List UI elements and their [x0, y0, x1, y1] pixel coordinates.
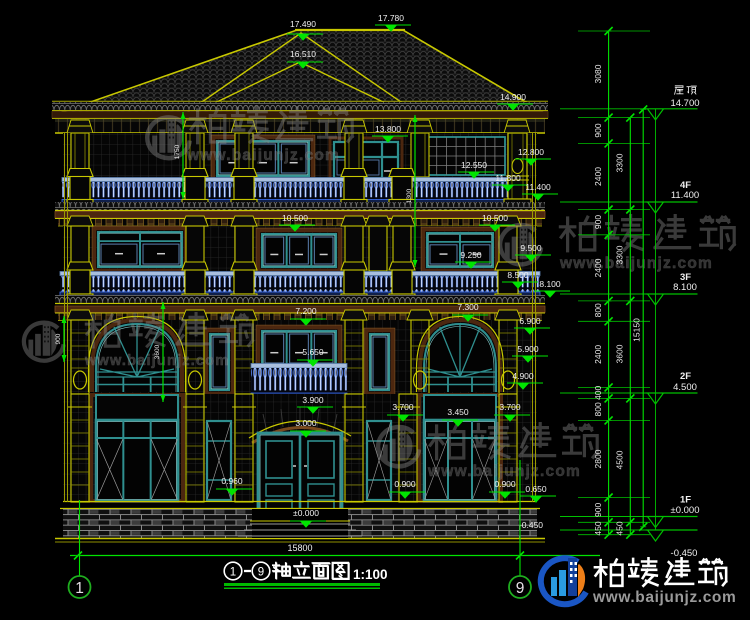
svg-text:11.400: 11.400: [671, 190, 699, 201]
svg-text:±0.000: ±0.000: [671, 505, 700, 516]
svg-text:2800: 2800: [593, 449, 603, 468]
svg-text:3300: 3300: [615, 245, 625, 264]
svg-text:450: 450: [615, 521, 625, 535]
svg-text:3.700: 3.700: [392, 402, 414, 412]
svg-text:17.490: 17.490: [290, 19, 316, 29]
svg-text:-0.450: -0.450: [671, 548, 698, 559]
svg-text:3.700: 3.700: [499, 402, 521, 412]
svg-text:2400: 2400: [593, 258, 603, 277]
svg-text:900: 900: [55, 333, 62, 344]
svg-text:8.500: 8.500: [507, 270, 529, 280]
svg-text:3300: 3300: [615, 153, 625, 172]
svg-text:1: 1: [75, 580, 84, 597]
svg-text:16.510: 16.510: [290, 49, 316, 59]
svg-text:15150: 15150: [632, 318, 642, 342]
svg-text:3.900: 3.900: [302, 395, 324, 405]
svg-text:9: 9: [516, 580, 525, 597]
svg-text:10.500: 10.500: [482, 213, 508, 223]
svg-text:11.800: 11.800: [495, 173, 521, 183]
svg-text:2F: 2F: [680, 371, 691, 382]
svg-text:5.650: 5.650: [302, 347, 324, 357]
svg-text:2400: 2400: [593, 345, 603, 364]
svg-text:2400: 2400: [593, 167, 603, 186]
svg-text:17.780: 17.780: [378, 13, 404, 23]
svg-text:11.400: 11.400: [525, 182, 551, 192]
svg-text:3080: 3080: [593, 64, 603, 83]
svg-text:8.100: 8.100: [539, 279, 561, 289]
svg-text:3600: 3600: [154, 344, 161, 359]
svg-text:±0.000: ±0.000: [293, 508, 319, 518]
svg-text:13.800: 13.800: [375, 124, 401, 134]
svg-text:www.baijunjz.com: www.baijunjz.com: [592, 589, 736, 606]
svg-text:4.500: 4.500: [673, 382, 697, 393]
svg-text:800: 800: [593, 303, 603, 317]
svg-text:450: 450: [593, 521, 603, 535]
svg-text:5.900: 5.900: [517, 344, 539, 354]
svg-text:www.baijunjz.com: www.baijunjz.com: [186, 147, 340, 164]
svg-text:4500: 4500: [615, 450, 625, 469]
svg-text:www.baijunjz.com: www.baijunjz.com: [559, 255, 713, 272]
svg-text:400: 400: [593, 386, 603, 400]
svg-text:9.250: 9.250: [460, 250, 482, 260]
svg-text:14.700: 14.700: [670, 98, 699, 109]
svg-text:7.200: 7.200: [295, 306, 317, 316]
svg-text:9.500: 9.500: [520, 243, 542, 253]
svg-text:900: 900: [593, 123, 603, 137]
svg-text:900: 900: [593, 503, 603, 517]
svg-text:-0.450: -0.450: [519, 520, 543, 530]
svg-text:www.baijunjz.com: www.baijunjz.com: [427, 463, 581, 480]
svg-text:0.900: 0.900: [394, 479, 416, 489]
svg-text:9: 9: [258, 567, 264, 579]
svg-text:6.900: 6.900: [519, 316, 541, 326]
svg-text:3.450: 3.450: [447, 407, 469, 417]
svg-text:3.000: 3.000: [295, 418, 317, 428]
svg-text:12.800: 12.800: [518, 147, 544, 157]
svg-text:7.300: 7.300: [457, 302, 479, 312]
svg-text:14.900: 14.900: [500, 92, 526, 102]
svg-text:1: 1: [230, 567, 236, 579]
svg-text:900: 900: [593, 215, 603, 229]
svg-text:1300: 1300: [406, 188, 413, 203]
svg-text:4.900: 4.900: [512, 371, 534, 381]
svg-text:0.650: 0.650: [525, 484, 547, 494]
svg-text:12.550: 12.550: [461, 160, 487, 170]
svg-text:8.100: 8.100: [673, 282, 697, 293]
svg-text:0.900: 0.900: [494, 479, 516, 489]
svg-text:15800: 15800: [287, 543, 312, 553]
svg-text:3600: 3600: [615, 344, 625, 363]
svg-text:1750: 1750: [174, 144, 181, 159]
svg-text:10.500: 10.500: [282, 213, 308, 223]
svg-text:800: 800: [593, 402, 603, 416]
svg-text:1:100: 1:100: [353, 567, 388, 582]
svg-text:1F: 1F: [680, 495, 691, 506]
svg-text:0.960: 0.960: [221, 476, 243, 486]
